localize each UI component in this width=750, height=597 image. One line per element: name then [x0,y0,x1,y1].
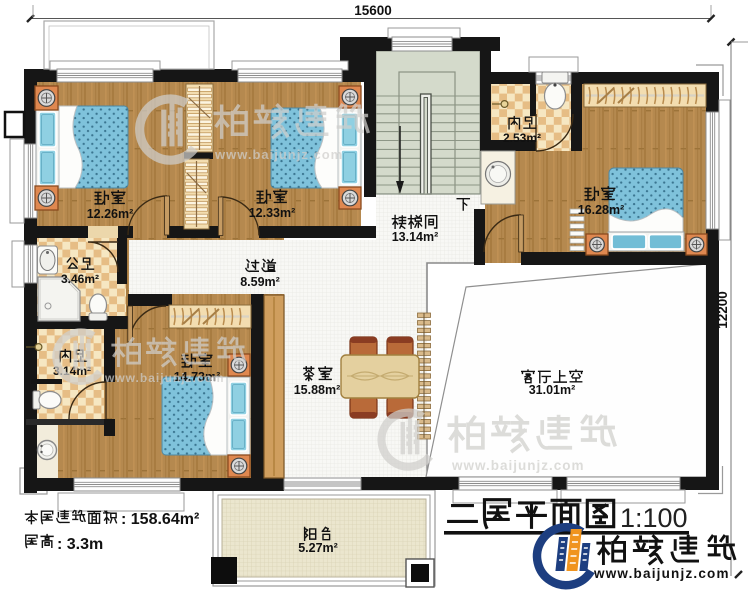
svg-text:3.46m²: 3.46m² [61,272,99,286]
svg-text:www.baijunjz.com: www.baijunjz.com [214,147,343,162]
svg-text:8.59m²: 8.59m² [240,275,280,289]
svg-text:15.88m²: 15.88m² [294,383,341,397]
svg-text:31.01m²: 31.01m² [529,383,576,397]
svg-text:www.baijunjz.com: www.baijunjz.com [104,371,225,385]
svg-text:12.33m²: 12.33m² [249,206,296,220]
svg-text:12.26m²: 12.26m² [87,207,134,221]
svg-text:: 3.3m: : 3.3m [57,536,103,553]
svg-text:15600: 15600 [354,3,392,18]
svg-text:16.28m²: 16.28m² [578,203,625,217]
svg-text:1:100: 1:100 [620,503,688,533]
svg-text:12200: 12200 [715,291,730,329]
svg-text:13.14m²: 13.14m² [392,230,439,244]
svg-text:2.53m²: 2.53m² [503,131,541,145]
svg-text:www.baijunjz.com: www.baijunjz.com [593,566,730,581]
svg-text:5.27m²: 5.27m² [298,541,338,555]
svg-text:: 158.64m²: : 158.64m² [121,511,199,528]
svg-text:www.baijunjz.com: www.baijunjz.com [451,458,585,473]
